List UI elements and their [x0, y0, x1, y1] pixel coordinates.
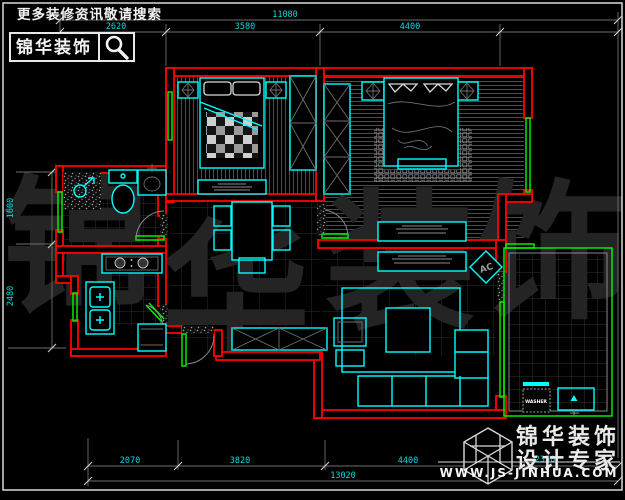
- balcony-shelf: [523, 382, 549, 386]
- dim-bottom-total: 13020: [330, 471, 356, 481]
- threshold-bedroom1: [317, 204, 326, 236]
- stove-knob: [131, 259, 133, 261]
- dim-left-seg2: 2480: [6, 286, 16, 306]
- wall-corridor-bottom: [216, 352, 320, 360]
- fridge: [138, 324, 166, 351]
- dim-bottom-seg2: 3820: [230, 456, 250, 466]
- dim-top-seg1: 2620: [106, 22, 126, 32]
- shoe-cabinet: [232, 328, 327, 350]
- wall-entry-jamb: [214, 330, 222, 356]
- wall-bathroom-left-upper: [56, 166, 63, 192]
- wall-bedroom1-bottom: [166, 194, 320, 201]
- master-rug-bottom: [374, 170, 472, 182]
- threshold-bathroom: [160, 214, 168, 238]
- threshold-entry: [182, 326, 214, 334]
- wall-living-bottom: [314, 410, 506, 418]
- wall-master-right-upper: [524, 68, 532, 118]
- dim-left-seg1: 1600: [6, 198, 16, 218]
- tv-cabinet: [378, 252, 466, 271]
- dim-top-total: 11080: [272, 10, 298, 20]
- stove-burner: [115, 258, 125, 268]
- wall-bedroom1-left: [166, 68, 174, 202]
- toilet-tank: [109, 170, 137, 183]
- brand-name: 锦华装饰: [516, 424, 620, 450]
- toilet-bowl: [112, 185, 134, 213]
- brand-block: 锦华装饰 设计专家 WWW.JS-JINHUA.COM: [438, 424, 620, 484]
- floor-plan-drawing: 锦 华 装 饰 11080 2620 3580 4400: [0, 0, 625, 500]
- entry-corridor: [232, 328, 327, 350]
- dim-top-seg2: 3580: [235, 22, 255, 32]
- dining-table: [232, 202, 272, 260]
- dim-bottom-seg3: 4400: [398, 456, 418, 466]
- brand-website: WWW.JS-JINHUA.COM: [440, 466, 619, 480]
- wall-bedroom-divider: [316, 68, 324, 201]
- washer-label: WASHER: [525, 399, 547, 405]
- sofa-chaise: [455, 330, 488, 378]
- stove-burner: [138, 258, 148, 268]
- coffee-table: [386, 308, 430, 352]
- shower-mat: [63, 172, 101, 210]
- wall-living-left: [314, 352, 322, 418]
- stove-knob: [131, 265, 133, 267]
- wall-kitchen-left-upper: [71, 276, 78, 294]
- master-dresser: [378, 222, 466, 241]
- dim-bottom-seg1: 2070: [120, 456, 140, 466]
- dim-top-seg3: 4400: [400, 22, 420, 32]
- promo-block: 更多装修资讯敬请搜索 锦华装饰: [10, 6, 162, 61]
- sofa: [358, 376, 488, 406]
- wall-bathroom-left-lower: [56, 230, 63, 282]
- search-prompt: 更多装修资讯敬请搜索: [17, 6, 162, 23]
- floor-plan-sheet: 锦 华 装 饰 11080 2620 3580 4400: [0, 0, 625, 500]
- wall-top: [166, 68, 532, 76]
- promo-logo-text: 锦华装饰: [16, 37, 92, 58]
- wall-bath-kitchen-divider: [56, 246, 166, 253]
